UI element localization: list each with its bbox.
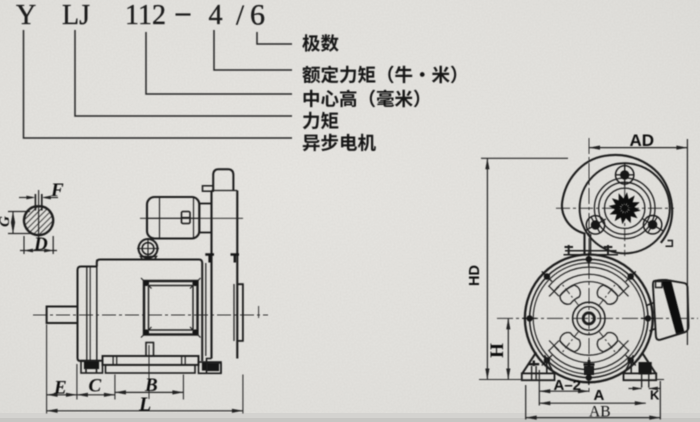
svg-text:Y: Y (16, 0, 36, 31)
svg-text:112: 112 (125, 0, 166, 31)
svg-text:H: H (487, 343, 508, 358)
svg-text:F: F (50, 180, 64, 201)
svg-text:C: C (89, 376, 102, 397)
svg-text:4: 4 (209, 0, 223, 31)
svg-text:HD: HD (467, 265, 483, 286)
svg-text:A: A (594, 387, 605, 404)
svg-text:AB: AB (589, 403, 611, 420)
svg-text:/: / (236, 0, 245, 32)
svg-text:E: E (53, 377, 67, 398)
svg-text:AD: AD (630, 131, 655, 150)
svg-text:G: G (0, 216, 13, 227)
svg-text:D: D (33, 234, 48, 255)
svg-text:L: L (138, 394, 151, 416)
svg-text:LJ: LJ (62, 0, 90, 31)
svg-text:A–2: A–2 (554, 377, 582, 394)
svg-text:6: 6 (250, 0, 265, 32)
svg-text:K: K (650, 388, 660, 403)
